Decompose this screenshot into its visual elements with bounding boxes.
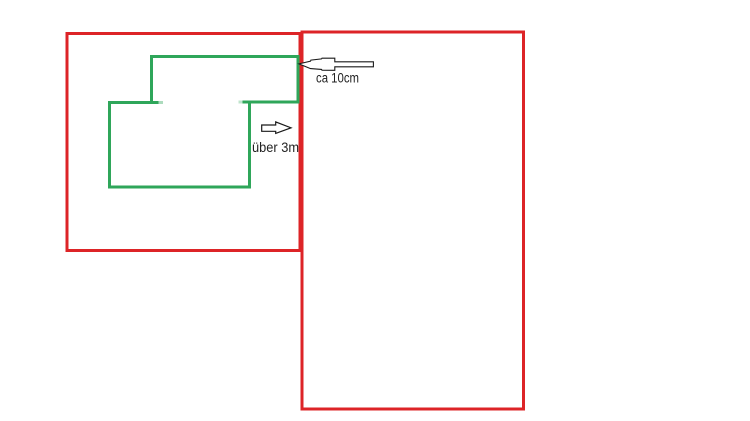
svg-text:über 3m: über 3m bbox=[252, 140, 299, 155]
svg-text:ca 10cm: ca 10cm bbox=[316, 71, 359, 86]
